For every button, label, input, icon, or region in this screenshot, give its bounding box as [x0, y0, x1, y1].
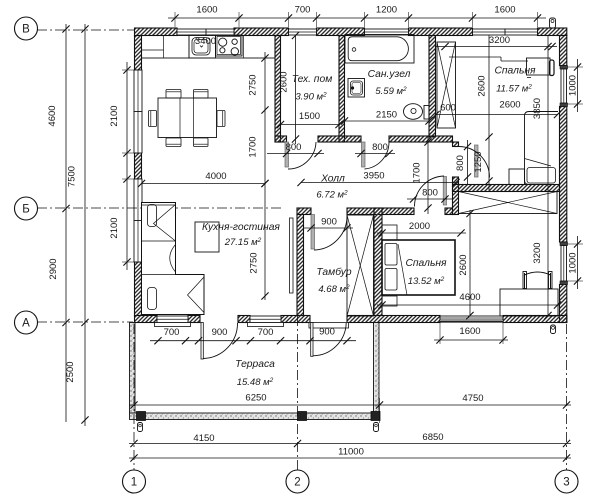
- svg-text:Тамбур: Тамбур: [316, 266, 352, 278]
- svg-text:1500: 1500: [299, 111, 320, 122]
- svg-text:Спальня: Спальня: [405, 258, 447, 269]
- svg-text:В: В: [22, 24, 30, 36]
- svg-text:27.15 м2: 27.15 м2: [224, 237, 262, 248]
- svg-text:Холл: Холл: [320, 174, 345, 185]
- svg-text:1200: 1200: [376, 5, 397, 16]
- svg-text:1000: 1000: [568, 75, 579, 96]
- svg-text:800: 800: [372, 142, 388, 153]
- svg-text:1700: 1700: [248, 136, 259, 157]
- svg-text:Тех. пом: Тех. пом: [292, 74, 333, 85]
- svg-text:5.59 м2: 5.59 м2: [375, 86, 407, 97]
- svg-text:4600: 4600: [459, 292, 480, 303]
- svg-text:2600: 2600: [279, 71, 290, 92]
- svg-text:800: 800: [286, 142, 302, 153]
- svg-text:11000: 11000: [338, 447, 364, 458]
- svg-text:2100: 2100: [109, 105, 120, 126]
- svg-text:2500: 2500: [65, 361, 76, 382]
- svg-text:900: 900: [212, 327, 228, 338]
- svg-text:3950: 3950: [363, 171, 384, 182]
- svg-text:1000: 1000: [568, 252, 579, 273]
- svg-text:2600: 2600: [499, 100, 520, 111]
- svg-text:15.48 м2: 15.48 м2: [237, 377, 274, 388]
- svg-text:Терраса: Терраса: [235, 359, 275, 370]
- svg-text:3850: 3850: [532, 98, 543, 119]
- svg-text:1: 1: [131, 477, 137, 489]
- svg-text:3200: 3200: [532, 242, 543, 263]
- svg-text:11.57 м2: 11.57 м2: [496, 84, 532, 95]
- svg-text:Спальня: Спальня: [494, 66, 536, 77]
- svg-text:2600: 2600: [458, 254, 469, 275]
- svg-text:1250: 1250: [473, 151, 484, 172]
- svg-text:4150: 4150: [193, 433, 214, 444]
- svg-text:2150: 2150: [376, 110, 397, 121]
- svg-text:4.68 м2: 4.68 м2: [318, 284, 350, 295]
- svg-text:Сан.узел: Сан.узел: [368, 69, 411, 80]
- svg-text:6850: 6850: [422, 432, 443, 443]
- svg-text:700: 700: [258, 327, 274, 338]
- svg-text:2600: 2600: [477, 75, 488, 96]
- svg-text:Б: Б: [22, 204, 30, 216]
- svg-text:1600: 1600: [459, 326, 480, 337]
- svg-text:7500: 7500: [67, 166, 78, 187]
- svg-text:4000: 4000: [205, 171, 226, 182]
- svg-text:2750: 2750: [249, 252, 260, 273]
- svg-text:800: 800: [422, 188, 438, 199]
- svg-text:2000: 2000: [409, 221, 430, 232]
- svg-text:4600: 4600: [47, 105, 58, 126]
- svg-text:2: 2: [294, 477, 300, 489]
- svg-text:900: 900: [321, 217, 337, 228]
- svg-text:700: 700: [164, 327, 180, 338]
- svg-text:Кухня-гостиная: Кухня-гостиная: [202, 222, 280, 233]
- svg-text:6250: 6250: [245, 393, 266, 404]
- svg-text:900: 900: [319, 327, 335, 338]
- svg-text:13.52 м2: 13.52 м2: [408, 276, 445, 287]
- svg-text:1700: 1700: [412, 162, 423, 183]
- svg-text:А: А: [22, 318, 30, 330]
- svg-text:3200: 3200: [489, 35, 510, 46]
- svg-text:700: 700: [295, 5, 311, 16]
- svg-text:3: 3: [563, 477, 569, 489]
- svg-text:6.72 м2: 6.72 м2: [316, 190, 348, 201]
- svg-text:1600: 1600: [494, 5, 515, 16]
- svg-text:1600: 1600: [196, 5, 217, 16]
- svg-text:800: 800: [455, 155, 466, 171]
- svg-text:2900: 2900: [48, 258, 59, 279]
- svg-text:4750: 4750: [462, 393, 483, 404]
- svg-text:2750: 2750: [248, 74, 259, 95]
- svg-text:2100: 2100: [109, 217, 120, 238]
- svg-text:3.90 м2: 3.90 м2: [295, 92, 327, 103]
